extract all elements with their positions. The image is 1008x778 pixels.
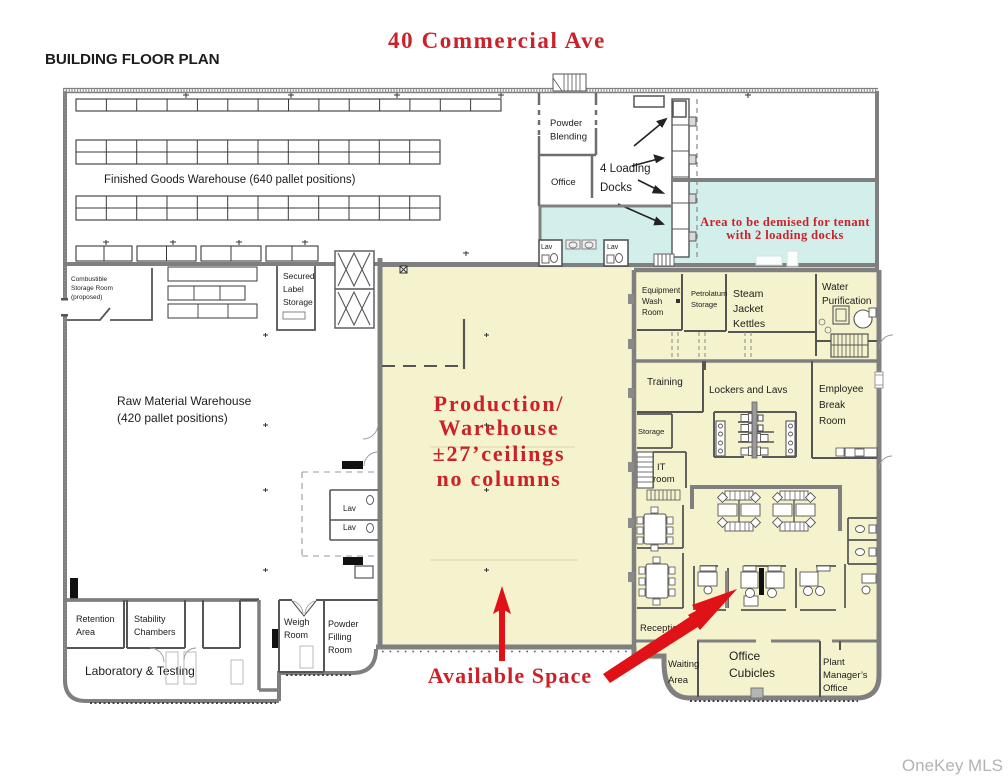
svg-text:Lav: Lav bbox=[607, 244, 619, 251]
svg-text:Production/: Production/ bbox=[434, 391, 565, 416]
svg-text:Waiting: Waiting bbox=[668, 659, 699, 670]
svg-text:BUILDING FLOOR PLAN: BUILDING FLOOR PLAN bbox=[45, 51, 219, 68]
svg-text:(proposed): (proposed) bbox=[71, 294, 102, 301]
svg-text:Weigh: Weigh bbox=[284, 617, 309, 627]
svg-text:Room: Room bbox=[328, 645, 352, 655]
svg-text:Jacket: Jacket bbox=[733, 303, 763, 315]
svg-text:Raw Material Warehouse: Raw Material Warehouse bbox=[117, 394, 252, 408]
svg-text:with 2 loading docks: with 2 loading docks bbox=[726, 228, 843, 242]
svg-text:Area: Area bbox=[668, 675, 689, 686]
svg-text:Equipment: Equipment bbox=[642, 286, 681, 295]
svg-text:Blending: Blending bbox=[550, 132, 587, 143]
svg-text:Office: Office bbox=[729, 649, 760, 663]
svg-text:Docks: Docks bbox=[600, 182, 632, 194]
svg-text:±27’ceilings: ±27’ceilings bbox=[433, 441, 566, 466]
svg-text:Filling: Filling bbox=[328, 632, 352, 642]
svg-text:Finished Goods Warehouse (640: Finished Goods Warehouse (640 pallet pos… bbox=[104, 174, 356, 186]
svg-text:Cubicles: Cubicles bbox=[729, 666, 775, 680]
svg-text:Plant: Plant bbox=[823, 657, 845, 668]
svg-text:Area to be demised for tenant: Area to be demised for tenant bbox=[700, 215, 870, 229]
svg-text:Secured: Secured bbox=[283, 271, 315, 281]
svg-text:Available Space: Available Space bbox=[428, 663, 593, 688]
svg-text:Powder: Powder bbox=[550, 118, 582, 129]
svg-text:Kettles: Kettles bbox=[733, 318, 765, 330]
svg-text:Room: Room bbox=[642, 308, 664, 317]
svg-text:Petrolatum: Petrolatum bbox=[691, 289, 727, 298]
svg-text:(420 pallet positions): (420 pallet positions) bbox=[117, 411, 228, 425]
svg-text:Office: Office bbox=[823, 683, 848, 694]
svg-text:Storage: Storage bbox=[691, 300, 717, 309]
svg-text:Room: Room bbox=[284, 630, 308, 640]
svg-text:Purification: Purification bbox=[822, 296, 871, 307]
svg-text:Chambers: Chambers bbox=[134, 627, 176, 637]
svg-text:Break: Break bbox=[819, 400, 846, 411]
svg-text:Wash: Wash bbox=[642, 297, 662, 306]
svg-text:Lav: Lav bbox=[343, 504, 356, 513]
svg-text:Storage Room: Storage Room bbox=[71, 285, 113, 292]
svg-text:Label: Label bbox=[283, 284, 304, 294]
svg-text:Steam: Steam bbox=[733, 288, 764, 300]
svg-text:Water: Water bbox=[822, 282, 849, 293]
svg-text:40 Commercial Ave: 40 Commercial Ave bbox=[388, 28, 606, 53]
svg-text:room: room bbox=[653, 474, 675, 485]
svg-text:Employee: Employee bbox=[819, 384, 864, 395]
svg-text:Office: Office bbox=[551, 177, 576, 188]
svg-text:Powder: Powder bbox=[328, 619, 359, 629]
svg-text:Warehouse: Warehouse bbox=[439, 415, 560, 440]
svg-text:Lockers and Lavs: Lockers and Lavs bbox=[709, 385, 787, 396]
svg-text:no columns: no columns bbox=[437, 466, 562, 491]
svg-text:Room: Room bbox=[819, 416, 846, 427]
svg-text:Storage: Storage bbox=[283, 297, 313, 307]
svg-text:Lav: Lav bbox=[343, 523, 356, 532]
svg-text:Manager’s: Manager’s bbox=[823, 670, 868, 681]
svg-text:IT: IT bbox=[657, 462, 666, 473]
svg-text:OneKey MLS: OneKey MLS bbox=[902, 756, 1003, 775]
svg-text:4 Loading: 4 Loading bbox=[600, 163, 651, 175]
svg-text:Lav: Lav bbox=[541, 244, 553, 251]
svg-text:Retention: Retention bbox=[76, 614, 115, 624]
svg-text:Stability: Stability bbox=[134, 614, 166, 624]
svg-text:Combustible: Combustible bbox=[71, 276, 108, 283]
svg-text:Area: Area bbox=[76, 627, 95, 637]
svg-text:Training: Training bbox=[647, 377, 683, 388]
svg-text:Storage: Storage bbox=[638, 427, 664, 436]
